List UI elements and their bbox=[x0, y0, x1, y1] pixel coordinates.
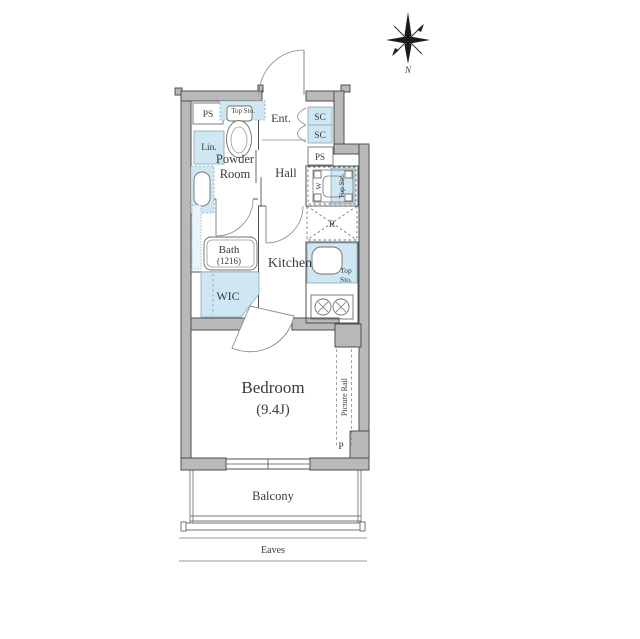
north-label: N bbox=[404, 65, 412, 75]
entrance-door-arc bbox=[259, 50, 304, 95]
ps-shaft-left: PS bbox=[193, 103, 223, 124]
sink-icon bbox=[312, 247, 342, 274]
washer-label: W bbox=[314, 182, 323, 190]
picture-rail-label: Picture Rail bbox=[340, 377, 349, 416]
refrigerator-space: R bbox=[307, 206, 357, 240]
shoe-cabinet-top: SC bbox=[308, 107, 332, 125]
stove-icon bbox=[311, 295, 353, 319]
ent-label: Ent. bbox=[271, 111, 291, 125]
kitchen-storage-label-2: Sto. bbox=[340, 275, 352, 284]
p-corner-label: P bbox=[338, 442, 343, 452]
bath-label-2: (1216) bbox=[217, 256, 241, 266]
ps-right-label: PS bbox=[315, 152, 325, 162]
hall-label: Hall bbox=[275, 166, 297, 180]
eaves-label: Eaves bbox=[261, 545, 285, 556]
bath-counter bbox=[192, 205, 201, 269]
floorplan-svg: N bbox=[0, 0, 640, 639]
sc-bottom-label: SC bbox=[314, 131, 326, 141]
compass-rose-icon: N bbox=[386, 12, 430, 75]
bath-label-1: Bath bbox=[219, 244, 240, 256]
linen-label: Lin. bbox=[201, 143, 217, 153]
toilet-storage-label: Top Sto. bbox=[231, 107, 255, 115]
window bbox=[226, 459, 310, 469]
picture-rail: Picture Rail bbox=[337, 349, 352, 446]
wic-label: WIC bbox=[216, 289, 239, 303]
sliding-door bbox=[256, 150, 261, 206]
balcony-label: Balcony bbox=[252, 489, 294, 503]
bifold-door-icon bbox=[298, 108, 307, 142]
balcony-area: Balcony bbox=[181, 470, 365, 531]
bedroom-label-2: (9.4J) bbox=[256, 402, 290, 418]
balcony-railing bbox=[181, 516, 365, 531]
kitchen-label: Kitchen bbox=[268, 256, 312, 271]
washer-storage-label: Top Sto. bbox=[337, 173, 346, 198]
powder-room-label-2: Room bbox=[220, 167, 251, 181]
shoe-cabinet-bottom: SC bbox=[308, 125, 332, 143]
kitchen-counter: Top Sto. bbox=[306, 242, 358, 323]
kitchen-door-arc bbox=[266, 206, 303, 243]
bath-door-arc bbox=[216, 199, 253, 236]
ps-left-label: PS bbox=[203, 110, 214, 120]
refrigerator-label: R bbox=[329, 220, 336, 230]
floorplan-image: N bbox=[0, 0, 640, 639]
sc-top-label: SC bbox=[314, 113, 326, 123]
eaves-area: Eaves bbox=[179, 538, 367, 561]
ps-shaft-right: PS bbox=[308, 147, 333, 165]
powder-room-label-1: Powder bbox=[216, 152, 255, 166]
bedroom-label-1: Bedroom bbox=[241, 378, 304, 397]
kitchen-storage-label-1: Top bbox=[340, 266, 352, 275]
